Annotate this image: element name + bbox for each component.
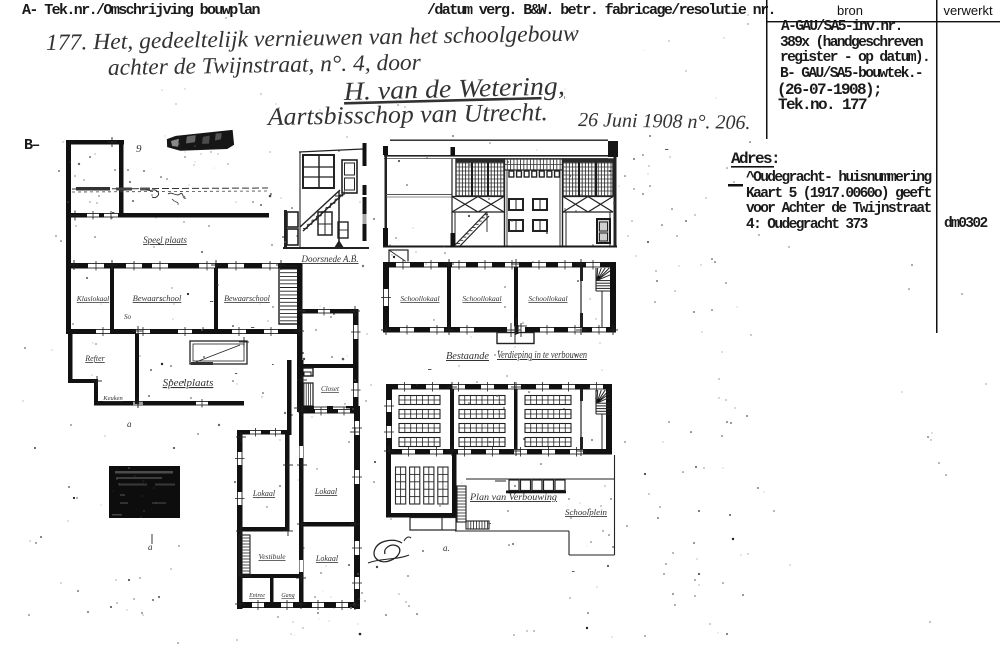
svg-text:4: Oudegracht 373: 4: Oudegracht 373 — [746, 217, 868, 233]
svg-text:Keuken: Keuken — [102, 395, 123, 402]
svg-text:voor Achter de Twijnstraat: voor Achter de Twijnstraat — [746, 201, 932, 217]
svg-text:Speel plaats: Speel plaats — [143, 235, 187, 245]
svg-text:Doorsnede A.B.: Doorsnede A.B. — [300, 254, 358, 264]
svg-text:Tek.no. 177: Tek.no. 177 — [778, 96, 867, 114]
svg-text:B- GAU/SA5-bouwtek.-: B- GAU/SA5-bouwtek.- — [780, 66, 922, 82]
svg-text:26 Juni 1908 n°. 206.: 26 Juni 1908 n°. 206. — [578, 109, 751, 134]
svg-text:Kaart 5 (1917.0060o) geeft: Kaart 5 (1917.0060o) geeft — [746, 186, 932, 202]
svg-text:/datum verg. B&W. betr. fabric: /datum verg. B&W. betr. fabricage/resolu… — [427, 2, 775, 19]
svg-text:Vestibule: Vestibule — [258, 552, 286, 561]
svg-text:verwerkt: verwerkt — [943, 3, 993, 18]
svg-text:Schoollokaal: Schoollokaal — [528, 294, 567, 303]
svg-text:Entree: Entree — [248, 593, 265, 599]
svg-text:Aartsbisschop van Utrecht.: Aartsbisschop van Utrecht. — [266, 99, 548, 131]
svg-text:Adres:: Adres: — [731, 150, 779, 168]
svg-text:^Oudegracht- huisnummering: ^Oudegracht- huisnummering — [746, 170, 932, 186]
svg-text:So: So — [124, 313, 132, 321]
svg-text:a.: a. — [443, 543, 450, 553]
svg-text:9: 9 — [136, 143, 142, 155]
svg-text:B–: B– — [24, 137, 39, 154]
svg-text:Lokaal: Lokaal — [315, 554, 339, 563]
svg-text:Gang: Gang — [281, 593, 294, 599]
svg-text:Bewaarschool: Bewaarschool — [224, 294, 271, 303]
svg-text:Plan van Verbouwing: Plan van Verbouwing — [469, 493, 557, 503]
svg-text:Schoolplein: Schoolplein — [565, 507, 607, 517]
svg-text:Klaslokaal: Klaslokaal — [76, 294, 110, 303]
svg-text:Bewaarschool: Bewaarschool — [133, 293, 182, 303]
svg-text:A- Tek.nr./Omschrijving bouwpl: A- Tek.nr./Omschrijving bouwplan — [22, 2, 260, 19]
svg-text:Lokaal: Lokaal — [252, 489, 276, 498]
svg-text:bron: bron — [837, 3, 863, 18]
svg-text:Schoollokaal: Schoollokaal — [462, 294, 501, 303]
svg-text:A-GAU/SA5-inv.nr.: A-GAU/SA5-inv.nr. — [781, 19, 902, 35]
svg-text:389x (handgeschreven: 389x (handgeschreven — [780, 35, 923, 51]
svg-text:Verdieping in te verbouwen: Verdieping in te verbouwen — [497, 350, 587, 361]
svg-text:Refter: Refter — [84, 354, 105, 363]
svg-text:register - op datum).: register - op datum). — [780, 50, 929, 66]
svg-text:Lokaal: Lokaal — [314, 487, 338, 496]
svg-text:Speelplaats: Speelplaats — [163, 377, 214, 389]
svg-text:Bestaande: Bestaande — [446, 351, 490, 362]
svg-text:dm0302: dm0302 — [944, 216, 988, 232]
svg-text:a: a — [127, 419, 132, 429]
svg-text:Closet: Closet — [321, 385, 340, 393]
svg-text:Schoollokaal: Schoollokaal — [400, 294, 439, 303]
